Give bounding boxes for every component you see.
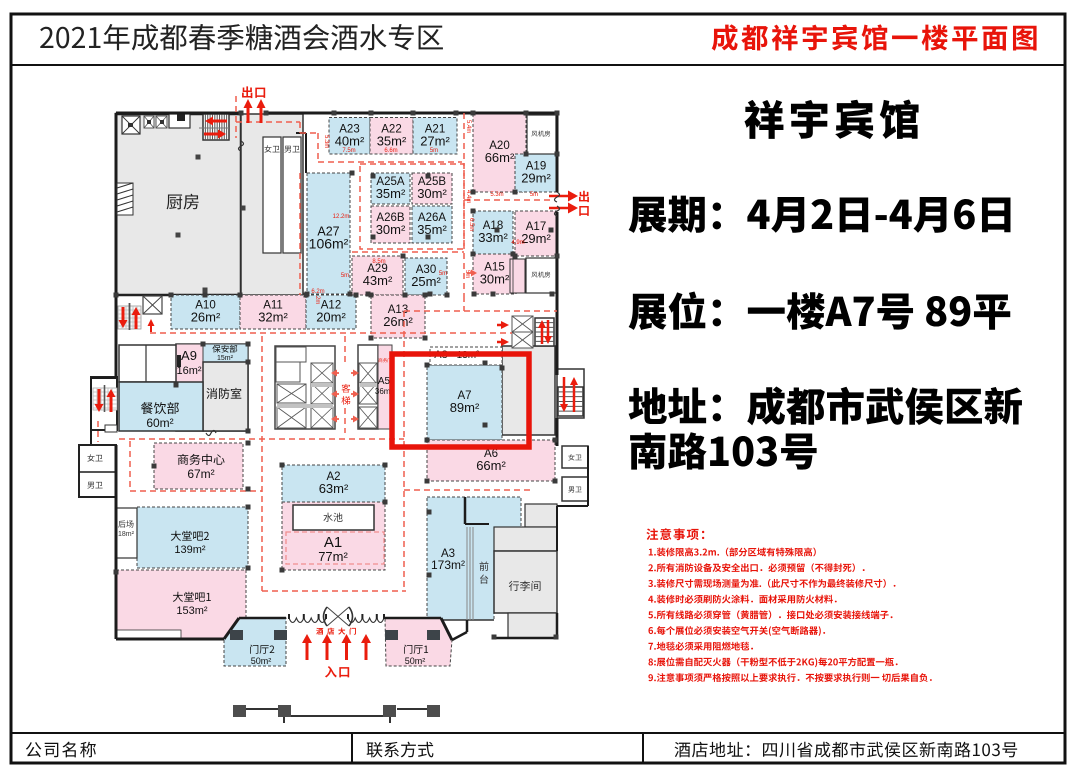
svg-text:8.5m: 8.5m [372, 259, 385, 265]
svg-text:66m²: 66m² [476, 458, 506, 473]
svg-text:4.4m: 4.4m [465, 190, 471, 203]
svg-text:A9: A9 [181, 348, 197, 363]
svg-text:20m²: 20m² [316, 310, 346, 325]
svg-text:27m²: 27m² [420, 133, 450, 148]
svg-text:5m: 5m [464, 270, 470, 278]
svg-text:50m²: 50m² [405, 656, 426, 666]
svg-text:60m²: 60m² [146, 416, 173, 430]
svg-text:5m: 5m [439, 271, 447, 277]
svg-text:18m²: 18m² [118, 531, 135, 538]
svg-text:50m²: 50m² [251, 656, 272, 666]
svg-text:2m: 2m [314, 296, 320, 304]
svg-text:5m: 5m [341, 273, 349, 279]
svg-text:25m²: 25m² [411, 274, 441, 289]
svg-text:77m²: 77m² [318, 549, 348, 564]
svg-text:5m: 5m [430, 148, 438, 154]
svg-text:89m²: 89m² [450, 400, 480, 415]
svg-text:7.5m: 7.5m [342, 148, 355, 154]
svg-text:67m²: 67m² [187, 467, 214, 481]
svg-text:26m²: 26m² [191, 310, 221, 325]
svg-text:5.3m: 5.3m [490, 192, 503, 198]
svg-text:12.2m: 12.2m [333, 214, 350, 220]
svg-text:35m²: 35m² [377, 133, 407, 148]
svg-text:15m²: 15m² [217, 355, 234, 362]
svg-text:16m²: 16m² [176, 365, 201, 377]
svg-text:4.9m: 4.9m [511, 240, 524, 246]
svg-text:153m²: 153m² [176, 605, 208, 617]
svg-text:32m²: 32m² [258, 310, 288, 325]
svg-text:5.4m: 5.4m [465, 120, 471, 133]
svg-text:5.3m: 5.3m [323, 135, 329, 148]
svg-text:29m²: 29m² [521, 231, 551, 246]
svg-text:43m²: 43m² [363, 273, 393, 288]
svg-text:35m²: 35m² [376, 186, 406, 201]
svg-text:173m²: 173m² [431, 558, 465, 572]
svg-text:139m²: 139m² [174, 544, 206, 556]
svg-text:6.6m: 6.6m [384, 148, 397, 154]
svg-text:30m²: 30m² [417, 186, 447, 201]
svg-text:6.2m: 6.2m [311, 289, 324, 295]
svg-text:40m²: 40m² [335, 133, 365, 148]
svg-text:35m²: 35m² [417, 222, 447, 237]
svg-text:6.5m: 6.5m [468, 218, 474, 231]
svg-text:33m²: 33m² [478, 230, 508, 245]
svg-text:5m: 5m [530, 192, 538, 198]
svg-text:66m²: 66m² [485, 150, 515, 165]
svg-text:29m²: 29m² [521, 171, 551, 186]
svg-text:106m²: 106m² [309, 236, 349, 252]
svg-text:63m²: 63m² [319, 481, 349, 496]
svg-text:A5: A5 [378, 376, 391, 387]
svg-text:30m²: 30m² [376, 222, 406, 237]
svg-text:30m²: 30m² [480, 272, 510, 287]
svg-text:26m²: 26m² [383, 314, 413, 329]
